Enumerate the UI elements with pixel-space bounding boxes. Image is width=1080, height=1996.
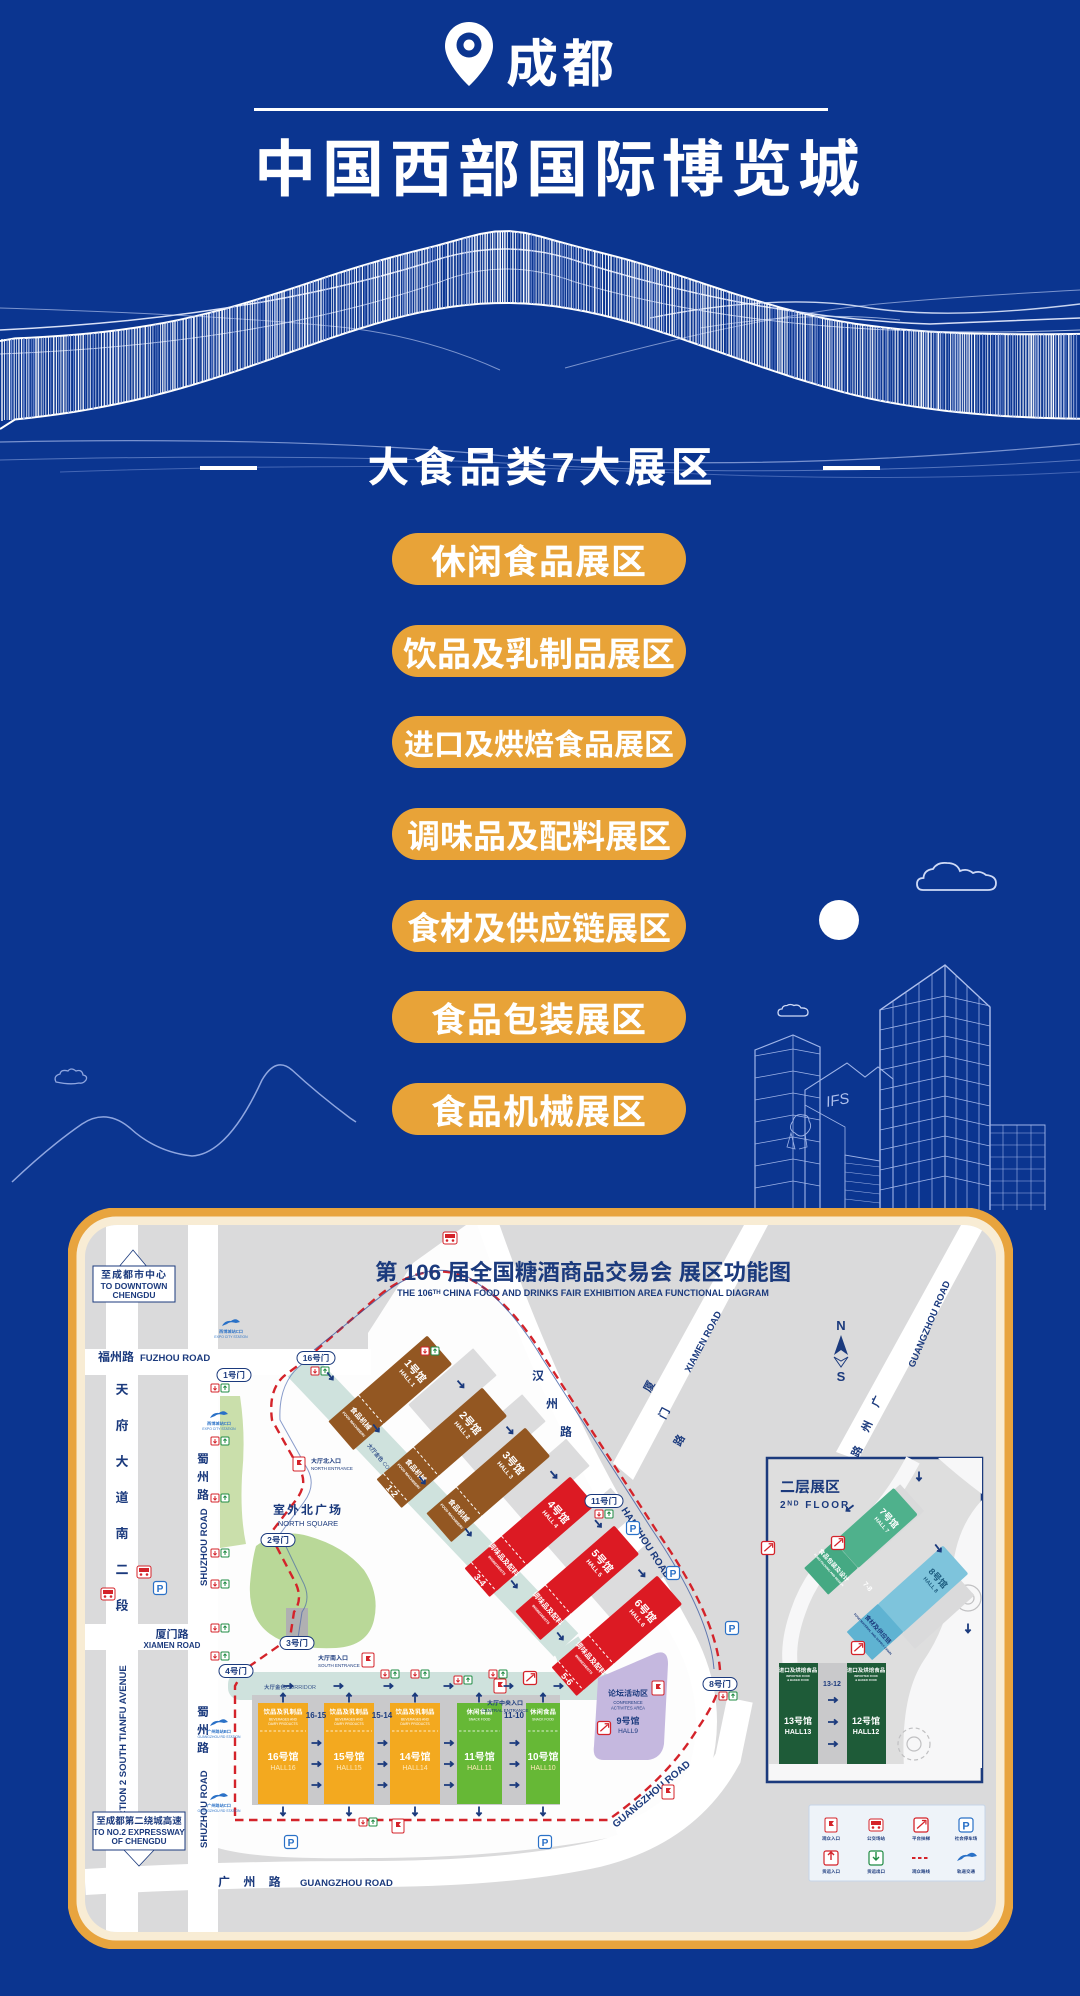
svg-text:公交场站: 公交场站 bbox=[867, 1836, 885, 1841]
svg-text:EXPO CITY STATION: EXPO CITY STATION bbox=[202, 1427, 236, 1431]
svg-text:P: P bbox=[729, 1624, 736, 1635]
svg-text:二层展区: 二层展区 bbox=[780, 1479, 840, 1496]
svg-text:9号馆: 9号馆 bbox=[616, 1716, 639, 1726]
svg-text:州: 州 bbox=[546, 1397, 558, 1411]
svg-text:大厅北入口: 大厅北入口 bbox=[311, 1457, 341, 1465]
svg-text:观众入口: 观众入口 bbox=[822, 1836, 840, 1841]
svg-text:至成都市中心: 至成都市中心 bbox=[101, 1269, 167, 1281]
svg-text:进口及烘焙食品: 进口及烘焙食品 bbox=[847, 1667, 886, 1674]
svg-text:HALL10: HALL10 bbox=[530, 1765, 555, 1772]
svg-text:DAIRY PRODUCTS: DAIRY PRODUCTS bbox=[334, 1722, 364, 1726]
svg-text:进口及烘焙食品: 进口及烘焙食品 bbox=[779, 1667, 818, 1674]
svg-text:蜀: 蜀 bbox=[197, 1705, 209, 1719]
svg-text:14号馆: 14号馆 bbox=[399, 1751, 430, 1763]
svg-text:路: 路 bbox=[560, 1425, 572, 1439]
svg-text:二: 二 bbox=[115, 1562, 128, 1577]
svg-text:货运出口: 货运出口 bbox=[867, 1869, 885, 1874]
svg-text:XIAMEN ROAD: XIAMEN ROAD bbox=[144, 1641, 201, 1650]
svg-text:3号门: 3号门 bbox=[286, 1638, 308, 1648]
svg-text:& BAKED FOOD: & BAKED FOOD bbox=[787, 1678, 809, 1682]
svg-text:15号馆: 15号馆 bbox=[333, 1751, 364, 1763]
svg-text:2号门: 2号门 bbox=[267, 1535, 289, 1545]
svg-text:休闲食品: 休闲食品 bbox=[530, 1708, 557, 1716]
svg-text:第 106 届全国糖酒商品交易会 展区功能图: 第 106 届全国糖酒商品交易会 展区功能图 bbox=[375, 1260, 791, 1285]
svg-text:福州路: 福州路 bbox=[98, 1350, 134, 1364]
svg-text:GUANGZHOU RD STATION: GUANGZHOU RD STATION bbox=[197, 1809, 241, 1813]
svg-text:4号门: 4号门 bbox=[225, 1666, 247, 1676]
svg-text:FUZHOU ROAD: FUZHOU ROAD bbox=[140, 1353, 210, 1364]
svg-text:NORTH SQUARE: NORTH SQUARE bbox=[278, 1519, 338, 1528]
svg-text:道: 道 bbox=[115, 1490, 128, 1505]
svg-text:HALL13: HALL13 bbox=[785, 1729, 812, 1736]
svg-text:SHUZHOU ROAD: SHUZHOU ROAD bbox=[199, 1508, 210, 1586]
svg-text:厦门路: 厦门路 bbox=[156, 1628, 189, 1641]
svg-text:社会停车场: 社会停车场 bbox=[955, 1836, 978, 1841]
svg-text:2ᴺᴰ FLOOR: 2ᴺᴰ FLOOR bbox=[780, 1500, 850, 1511]
svg-text:15-14: 15-14 bbox=[372, 1711, 393, 1720]
svg-text:HALL11: HALL11 bbox=[467, 1765, 492, 1772]
svg-text:平台扶梯: 平台扶梯 bbox=[912, 1836, 930, 1841]
svg-text:南: 南 bbox=[115, 1526, 128, 1541]
svg-text:SECTION 2 SOUTH TIANFU AVENUE: SECTION 2 SOUTH TIANFU AVENUE bbox=[118, 1665, 129, 1830]
svg-text:10号馆: 10号馆 bbox=[527, 1751, 558, 1763]
svg-text:N: N bbox=[836, 1318, 845, 1333]
svg-text:EXPO CITY STATION: EXPO CITY STATION bbox=[214, 1335, 248, 1339]
svg-text:16号馆: 16号馆 bbox=[267, 1751, 298, 1763]
svg-text:大厅中央入口: 大厅中央入口 bbox=[487, 1699, 523, 1707]
svg-text:CONFERENCE: CONFERENCE bbox=[613, 1700, 643, 1705]
svg-text:P: P bbox=[630, 1524, 637, 1535]
svg-text:P: P bbox=[962, 1820, 969, 1832]
svg-text:THE 106ᵀᴴ CHINA FOOD AND DRINK: THE 106ᵀᴴ CHINA FOOD AND DRINKS FAIR EXH… bbox=[397, 1288, 769, 1298]
svg-text:室外北广场: 室外北广场 bbox=[273, 1503, 343, 1517]
svg-text:1号门: 1号门 bbox=[223, 1370, 245, 1380]
svg-text:DAIRY PRODUCTS: DAIRY PRODUCTS bbox=[400, 1722, 430, 1726]
svg-text:天: 天 bbox=[115, 1382, 128, 1397]
svg-text:GUANGZHOU ROAD: GUANGZHOU ROAD bbox=[300, 1878, 393, 1889]
svg-text:P: P bbox=[288, 1838, 295, 1849]
svg-text:CHENGDU: CHENGDU bbox=[113, 1290, 156, 1300]
svg-text:蜀: 蜀 bbox=[197, 1452, 209, 1466]
svg-text:HALL15: HALL15 bbox=[336, 1765, 361, 1772]
svg-text:HALL9: HALL9 bbox=[618, 1728, 638, 1735]
svg-text:轨道交通: 轨道交通 bbox=[957, 1869, 975, 1874]
svg-text:16号门: 16号门 bbox=[303, 1353, 329, 1363]
svg-text:汉: 汉 bbox=[532, 1369, 544, 1383]
svg-text:16-15: 16-15 bbox=[306, 1711, 327, 1720]
svg-text:12号馆: 12号馆 bbox=[852, 1716, 880, 1726]
svg-text:P: P bbox=[670, 1569, 677, 1580]
svg-text:BEVERAGES AND: BEVERAGES AND bbox=[401, 1718, 430, 1722]
svg-text:DAIRY PRODUCTS: DAIRY PRODUCTS bbox=[268, 1722, 298, 1726]
svg-text:论坛活动区: 论坛活动区 bbox=[608, 1689, 648, 1698]
svg-text:BEVERAGES AND: BEVERAGES AND bbox=[335, 1718, 364, 1722]
svg-text:P: P bbox=[542, 1838, 549, 1849]
svg-text:CENTRAL ENTRANCE: CENTRAL ENTRANCE bbox=[482, 1708, 529, 1713]
svg-text:13-12: 13-12 bbox=[823, 1681, 841, 1688]
svg-text:广州路站B口: 广州路站B口 bbox=[207, 1729, 231, 1734]
svg-text:观众路线: 观众路线 bbox=[912, 1869, 930, 1874]
svg-text:饮品及乳制品: 饮品及乳制品 bbox=[330, 1708, 370, 1716]
svg-text:西博城站C口: 西博城站C口 bbox=[219, 1329, 243, 1334]
svg-text:SNACK FOOD: SNACK FOOD bbox=[469, 1718, 491, 1722]
svg-text:11号馆: 11号馆 bbox=[464, 1751, 495, 1763]
svg-text:HALL14: HALL14 bbox=[402, 1765, 427, 1772]
svg-text:BEVERAGES AND: BEVERAGES AND bbox=[269, 1718, 298, 1722]
svg-text:HALL16: HALL16 bbox=[270, 1765, 295, 1772]
svg-text:路: 路 bbox=[197, 1488, 209, 1502]
svg-text:SNACK FOOD: SNACK FOOD bbox=[532, 1718, 554, 1722]
svg-text:OF CHENGDU: OF CHENGDU bbox=[111, 1837, 166, 1846]
svg-text:GUANGZHOU RD STATION: GUANGZHOU RD STATION bbox=[197, 1735, 241, 1739]
svg-text:路: 路 bbox=[197, 1741, 209, 1755]
svg-text:段: 段 bbox=[115, 1598, 128, 1613]
svg-text:至成都第二绕城高速: 至成都第二绕城高速 bbox=[96, 1815, 182, 1827]
svg-text:饮品及乳制品: 饮品及乳制品 bbox=[264, 1708, 304, 1716]
svg-text:P: P bbox=[157, 1584, 164, 1595]
svg-text:HALL12: HALL12 bbox=[853, 1729, 880, 1736]
svg-text:NORTH ENTRANCE: NORTH ENTRANCE bbox=[311, 1466, 353, 1471]
svg-text:11号门: 11号门 bbox=[591, 1496, 617, 1506]
svg-text:货运入口: 货运入口 bbox=[822, 1869, 840, 1874]
svg-text:IFS: IFS bbox=[825, 1090, 851, 1111]
svg-text:8号门: 8号门 bbox=[709, 1679, 731, 1689]
svg-text:13号馆: 13号馆 bbox=[784, 1716, 812, 1726]
svg-text:ACTIVITES AREA: ACTIVITES AREA bbox=[611, 1706, 645, 1711]
svg-text:大厅南入口: 大厅南入口 bbox=[318, 1654, 348, 1662]
svg-text:广州路站C口: 广州路站C口 bbox=[207, 1803, 231, 1808]
svg-text:饮品及乳制品: 饮品及乳制品 bbox=[396, 1708, 436, 1716]
svg-text:府: 府 bbox=[115, 1418, 128, 1433]
svg-text:大: 大 bbox=[115, 1454, 128, 1469]
svg-text:西博城站C口: 西博城站C口 bbox=[207, 1421, 231, 1426]
svg-text:SOUTH ENTRANCE: SOUTH ENTRANCE bbox=[318, 1663, 360, 1668]
svg-text:TO NO.2 EXPRESSWAY: TO NO.2 EXPRESSWAY bbox=[93, 1828, 185, 1837]
svg-text:广 州 路: 广 州 路 bbox=[218, 1875, 286, 1889]
svg-text:S: S bbox=[837, 1369, 846, 1384]
svg-text:& BAKED FOOD: & BAKED FOOD bbox=[855, 1678, 877, 1682]
svg-text:州: 州 bbox=[197, 1470, 209, 1484]
